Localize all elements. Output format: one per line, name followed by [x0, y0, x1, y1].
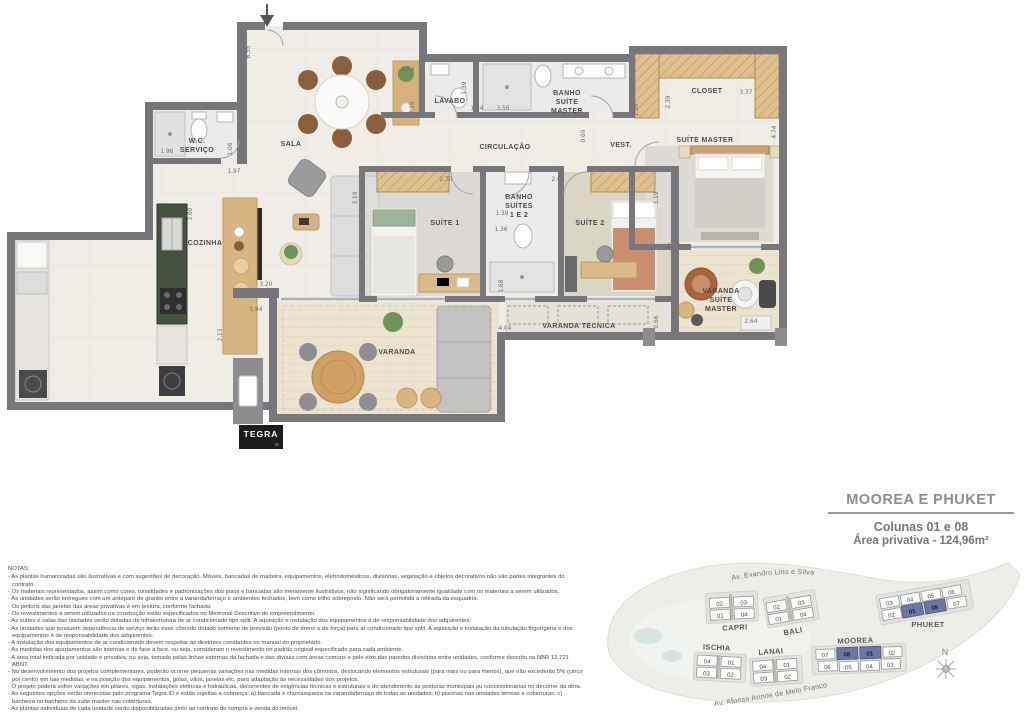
room-label-suite1: SUÍTE 1 [430, 218, 459, 227]
unit-moorea-07: 07 [822, 653, 830, 659]
unit-ischia-03: 03 [703, 671, 711, 677]
room-label-cozinha: COZINHA [188, 240, 223, 247]
dim-1-68: 1.68 [499, 279, 505, 292]
room-label-vest: VEST. [610, 142, 631, 149]
dim-1-97: 1.97 [228, 169, 241, 175]
note-item: - O projeto poderá sofrer variações em p… [8, 684, 583, 691]
room-label-circulacao: CIRCULAÇÃO [479, 142, 530, 151]
room-label-varanda-master-2: SUÍTE [710, 295, 733, 304]
unit-ischia-02: 02 [727, 673, 735, 679]
title-divider [828, 512, 1014, 514]
room-label-varanda: VARANDA [378, 349, 415, 356]
note-item: - A instalação dos equipamentos de ar co… [8, 640, 583, 647]
dim-4-54: 4.54 [402, 67, 415, 73]
dim-3-20: 3.20 [260, 282, 273, 288]
dim-2-70: 2.70 [440, 177, 453, 183]
plan-columns: Colunas 01 e 08 [826, 520, 1016, 534]
notes-block: NOTAS: - As plantas humanizadas são ilus… [8, 566, 583, 713]
dim-5-94: 5.94 [250, 307, 263, 313]
dim-2-64: 2.64 [745, 319, 758, 325]
unit-lanai-04: 04 [759, 664, 767, 670]
dim-2-13: 2.13 [218, 328, 224, 341]
dim-0-66: 0.66 [654, 315, 660, 328]
room-label-banho-master-2: SUÍTE [556, 97, 579, 106]
plan-area: Área privativa - 124,96m² [826, 535, 1016, 547]
unit-lanai-03: 03 [760, 676, 768, 682]
dim-4-04: 4.04 [499, 326, 512, 332]
dim-3-60: 3.60 [188, 207, 194, 220]
building-label-capri: CAPRI [722, 622, 748, 632]
tegra-logo: TEGRA ID [239, 425, 283, 449]
unit-moorea-08-highlighted: 08 [844, 652, 852, 658]
dim-2-39b: 2.39 [666, 95, 672, 108]
dim-1-39b: 1.39 [496, 211, 509, 217]
room-label-banho-suites-1: BANHO [505, 194, 533, 201]
dim-4-74: 4.74 [772, 125, 778, 138]
dim-1-39a: 1.39 [462, 81, 468, 94]
unit-moorea-03: 03 [887, 663, 895, 669]
note-item: - As plantas humanizadas são ilustrativa… [8, 574, 583, 589]
room-label-sala: SALA [281, 141, 302, 148]
dim-1-34: 1.34 [471, 106, 484, 112]
unit-moorea-05: 05 [845, 665, 853, 671]
pillar-panel [239, 376, 257, 406]
dim-1-84: 1.84 [220, 405, 233, 411]
unit-capri-04: 04 [741, 612, 749, 618]
note-item: - As seguintes opções serão oferecidas p… [8, 691, 583, 706]
note-item: - Os revestimentos a serem utilizados na… [8, 611, 583, 618]
unit-ischia-01: 01 [728, 661, 736, 667]
coffee-table [293, 214, 319, 230]
room-label-banho-suites-3: 1 E 2 [510, 212, 528, 219]
unit-moorea-02: 02 [888, 651, 896, 657]
room-label-closet: CLOSET [692, 88, 723, 95]
tegra-logo-id: ID [275, 442, 280, 447]
floor-plan: SALA W.C. SERVIÇO COZINHA LAVABO BANHO S… [0, 0, 870, 470]
title-block: MOOREA E PHUKET Colunas 01 e 08 Área pri… [826, 492, 1016, 547]
dim-3-37: 3.37 [740, 90, 753, 96]
dim-6-35: 6.35 [246, 45, 252, 58]
tv-screen [257, 208, 262, 280]
room-label-varanda-master-1: VARANDA [702, 288, 739, 295]
room-label-varanda-tecnica: VARANDA TÉCNICA [542, 321, 615, 330]
dim-1-36b: 1.36 [495, 227, 508, 233]
note-item: - As suítes e salas das unidades serão d… [8, 618, 583, 625]
room-label-varanda-master-3: MASTER [705, 306, 737, 313]
north-compass-icon [936, 659, 956, 679]
unit-lanai-02: 02 [784, 675, 792, 681]
note-item: - Os materiais representados, assim como… [8, 589, 583, 596]
notes-heading: NOTAS: [8, 566, 583, 573]
unit-moorea-01-highlighted: 01 [867, 651, 875, 657]
room-label-suite2: SUÍTE 2 [575, 218, 604, 227]
unit-lanai-01: 01 [783, 663, 791, 669]
dim-1-60: 1.60 [672, 311, 678, 324]
dim-1-06: 1.06 [228, 142, 234, 155]
note-item: - As medidas dos apartamentos são intern… [8, 647, 583, 654]
dim-2-39a: 2.39 [410, 101, 416, 114]
note-item: - As plantas individuais de cada unidade… [8, 706, 583, 713]
dim-3-19b: 3.19 [654, 191, 660, 204]
unit-capri-01: 01 [717, 614, 725, 620]
unit-ischia-04: 04 [704, 659, 712, 665]
room-label-lavabo: LAVABO [435, 98, 466, 105]
building-label-ischia: ISCHIA [703, 642, 731, 652]
room-label-wc: W.C. [189, 138, 206, 145]
dim-0-69: 0.69 [581, 129, 587, 142]
site-pool-2 [662, 650, 682, 662]
room-label-banho-suites-2: SUÍTES [505, 201, 533, 210]
compass-north-label: N [942, 647, 949, 657]
site-pool [634, 628, 662, 644]
dim-1-96: 1.96 [161, 149, 174, 155]
room-label-banho-master-1: BANHO [553, 90, 581, 97]
dim-3-56: 3.56 [497, 106, 510, 112]
tegra-logo-text: TEGRA [244, 429, 279, 439]
note-item: - A área total indicada por unidade é pr… [8, 655, 583, 670]
unit-capri-03: 03 [740, 600, 748, 606]
dim-3-19a: 3.19 [353, 191, 359, 204]
page: SALA W.C. SERVIÇO COZINHA LAVABO BANHO S… [0, 0, 1024, 724]
unit-moorea-06: 06 [824, 665, 832, 671]
dim-2-77: 2.77 [668, 244, 681, 250]
plan-title: MOOREA E PHUKET [826, 492, 1016, 508]
room-label-banho-master-3: MASTER [551, 108, 583, 115]
building-label-lanai: LANAI [758, 646, 783, 657]
note-item: - Os peitoris das janelas das áreas priv… [8, 604, 583, 611]
room-label-suite-master: SUÍTE MASTER [677, 135, 734, 144]
dim-1-36a: 1.36 [634, 103, 640, 116]
site-map: Av. Evandro Lins e Silva Av. Afonso Arin… [600, 552, 1024, 724]
room-label-wc2: SERVIÇO [180, 147, 214, 154]
note-item: - No desenvolvimento dos projetos comple… [8, 669, 583, 684]
unit-capri-02: 02 [716, 602, 724, 608]
side-table-plant [280, 243, 302, 265]
building-label-phuket: PHUKET [911, 620, 944, 629]
dim-2-69: 2.69 [552, 177, 565, 183]
note-item: - As unidades que possuem dependência de… [8, 626, 583, 641]
note-item: - As unidades serão entregues com um ant… [8, 596, 583, 603]
unit-moorea-04: 04 [866, 664, 874, 670]
